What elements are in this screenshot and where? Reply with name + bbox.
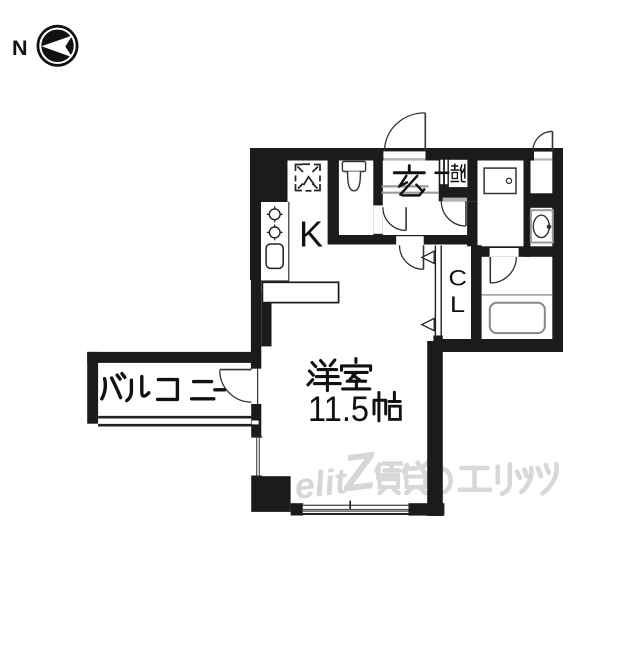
svg-text:11.5: 11.5 bbox=[308, 390, 369, 429]
svg-text:C: C bbox=[449, 265, 468, 290]
svg-text:K: K bbox=[299, 214, 323, 255]
svg-text:L: L bbox=[450, 292, 465, 317]
svg-text:N: N bbox=[12, 36, 28, 60]
